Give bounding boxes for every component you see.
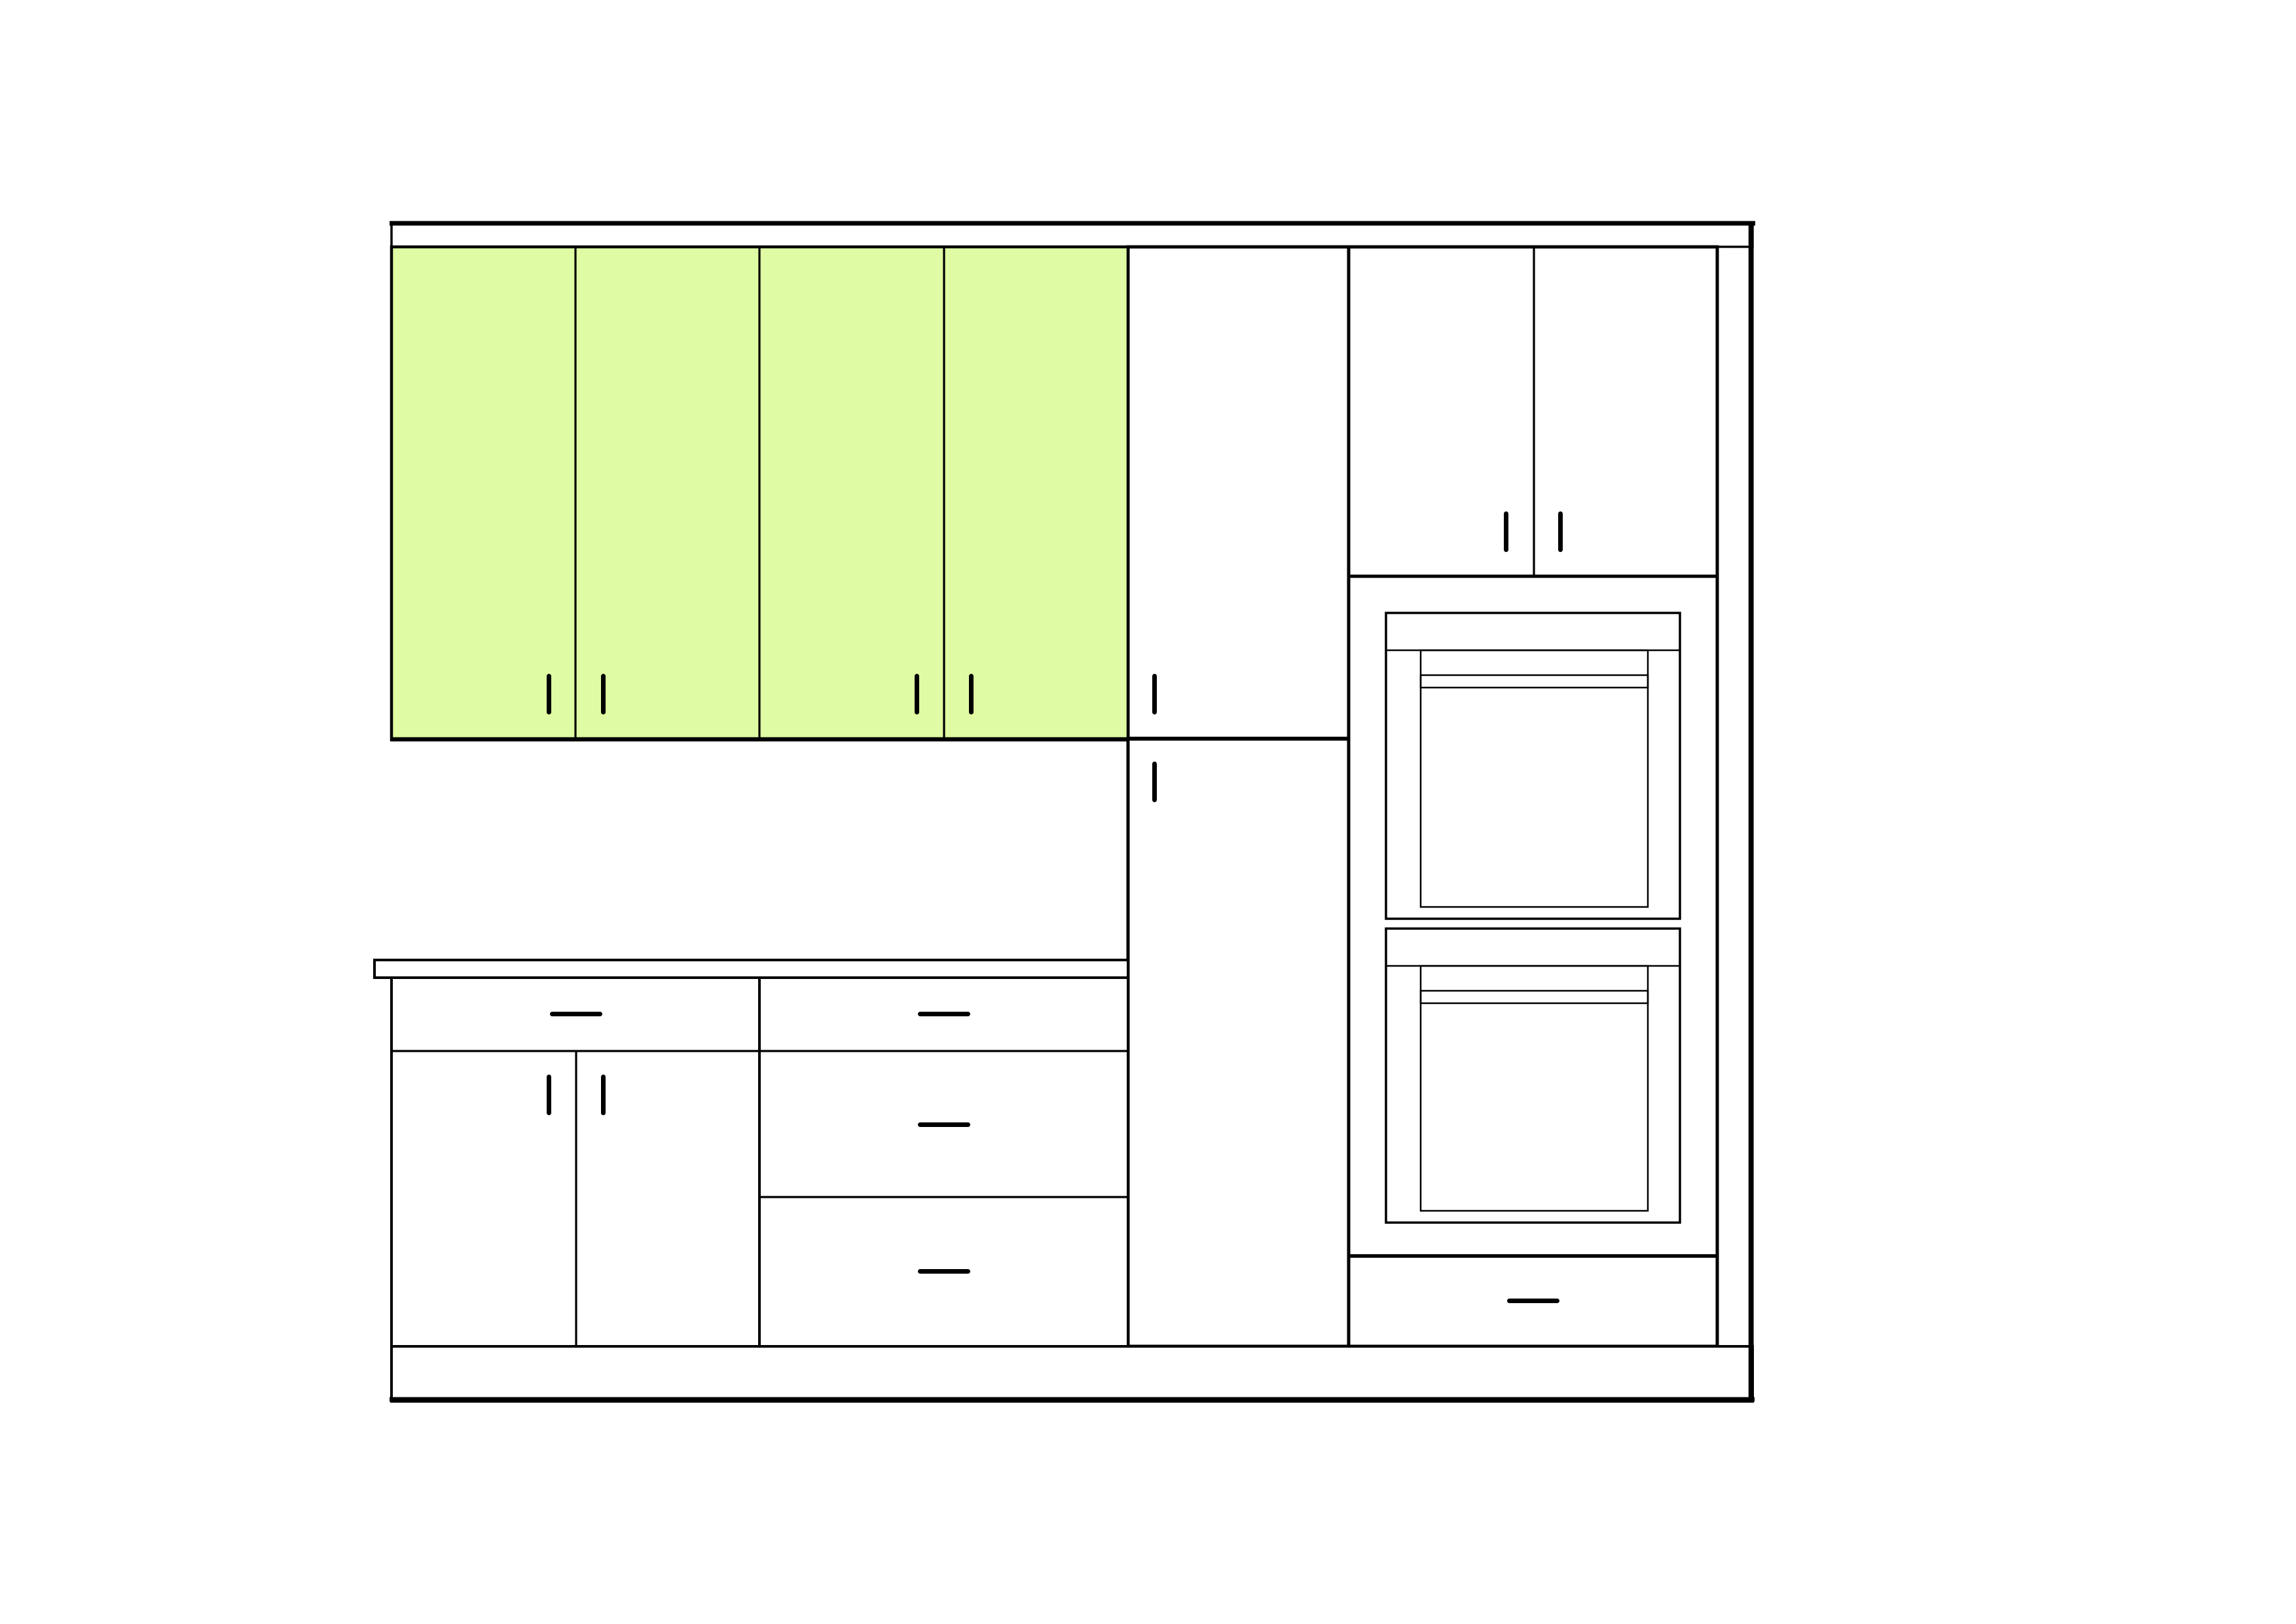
wall-door-handle-3: [915, 674, 919, 714]
wall-door-handle-4: [969, 674, 974, 714]
countertop: [374, 960, 1128, 978]
kitchen-elevation-canvas: [0, 0, 2296, 1624]
base-cabinet-right[interactable]: [759, 978, 1128, 1346]
upper-oven[interactable]: [1386, 613, 1680, 919]
plinth: [392, 1346, 1753, 1401]
tall-lower-door-handle: [1152, 762, 1157, 802]
base-right-drawer1-handle: [918, 1012, 970, 1016]
tall-upper-door-handle: [1152, 674, 1157, 714]
base-right-drawer2-handle: [918, 1122, 970, 1127]
base-door-handle-right: [601, 1075, 606, 1115]
base-door-handle-left: [547, 1075, 551, 1115]
base-left-drawer-handle: [550, 1012, 602, 1016]
wall-door-handle-2: [601, 674, 606, 714]
upper-cab-handle-right: [1558, 511, 1563, 552]
wall-door-handle-1: [547, 674, 551, 714]
base-right-drawer3-handle: [918, 1269, 970, 1274]
side-panel: [1717, 247, 1753, 1346]
lower-oven[interactable]: [1386, 929, 1680, 1223]
cornice-rail: [392, 223, 1753, 247]
kitchen-elevation-drawing: [0, 0, 2296, 1624]
tower-drawer-handle: [1507, 1299, 1559, 1303]
tall-cabinet[interactable]: [1128, 247, 1349, 1346]
upper-cab-handle-left: [1504, 511, 1508, 552]
